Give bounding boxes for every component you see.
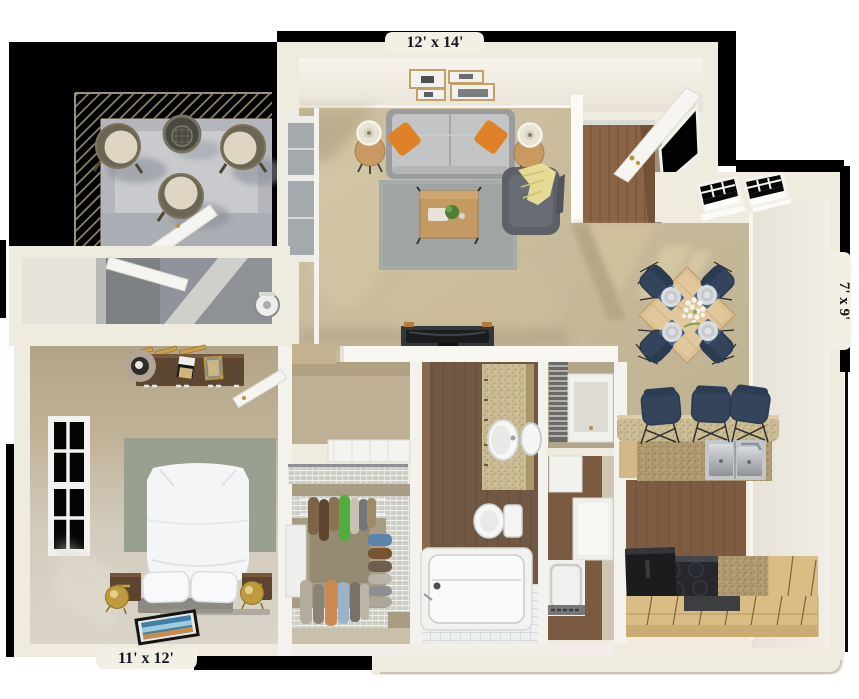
svg-text:12' x 14': 12' x 14': [407, 34, 464, 51]
svg-text:11' x 12': 11' x 12': [118, 650, 174, 667]
svg-text:7' x 9': 7' x 9': [836, 282, 852, 320]
